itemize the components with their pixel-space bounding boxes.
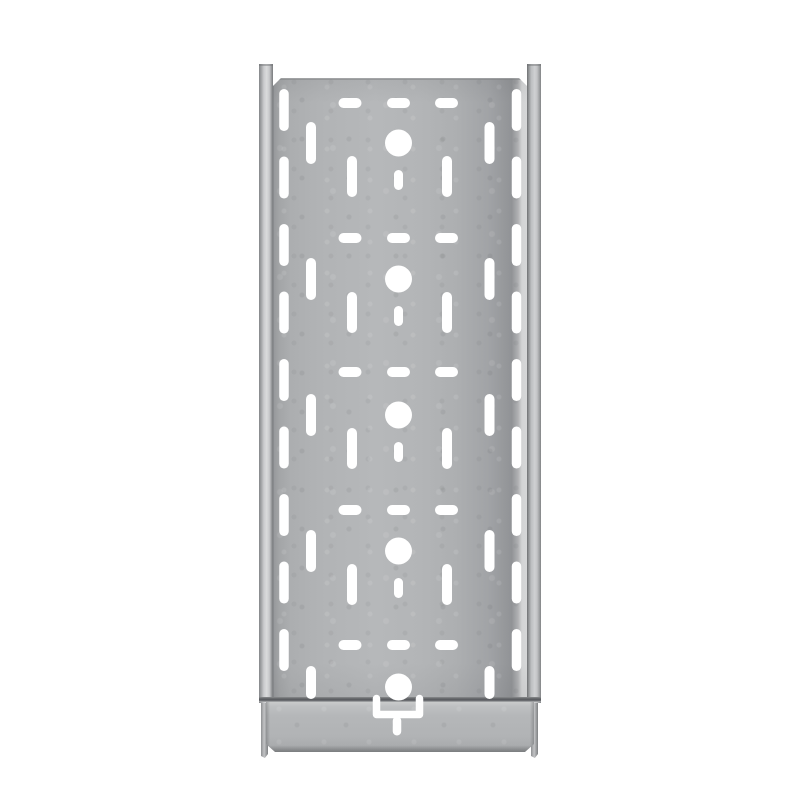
product-photo-cable-tray	[0, 0, 800, 800]
perforation-holes	[0, 0, 800, 800]
